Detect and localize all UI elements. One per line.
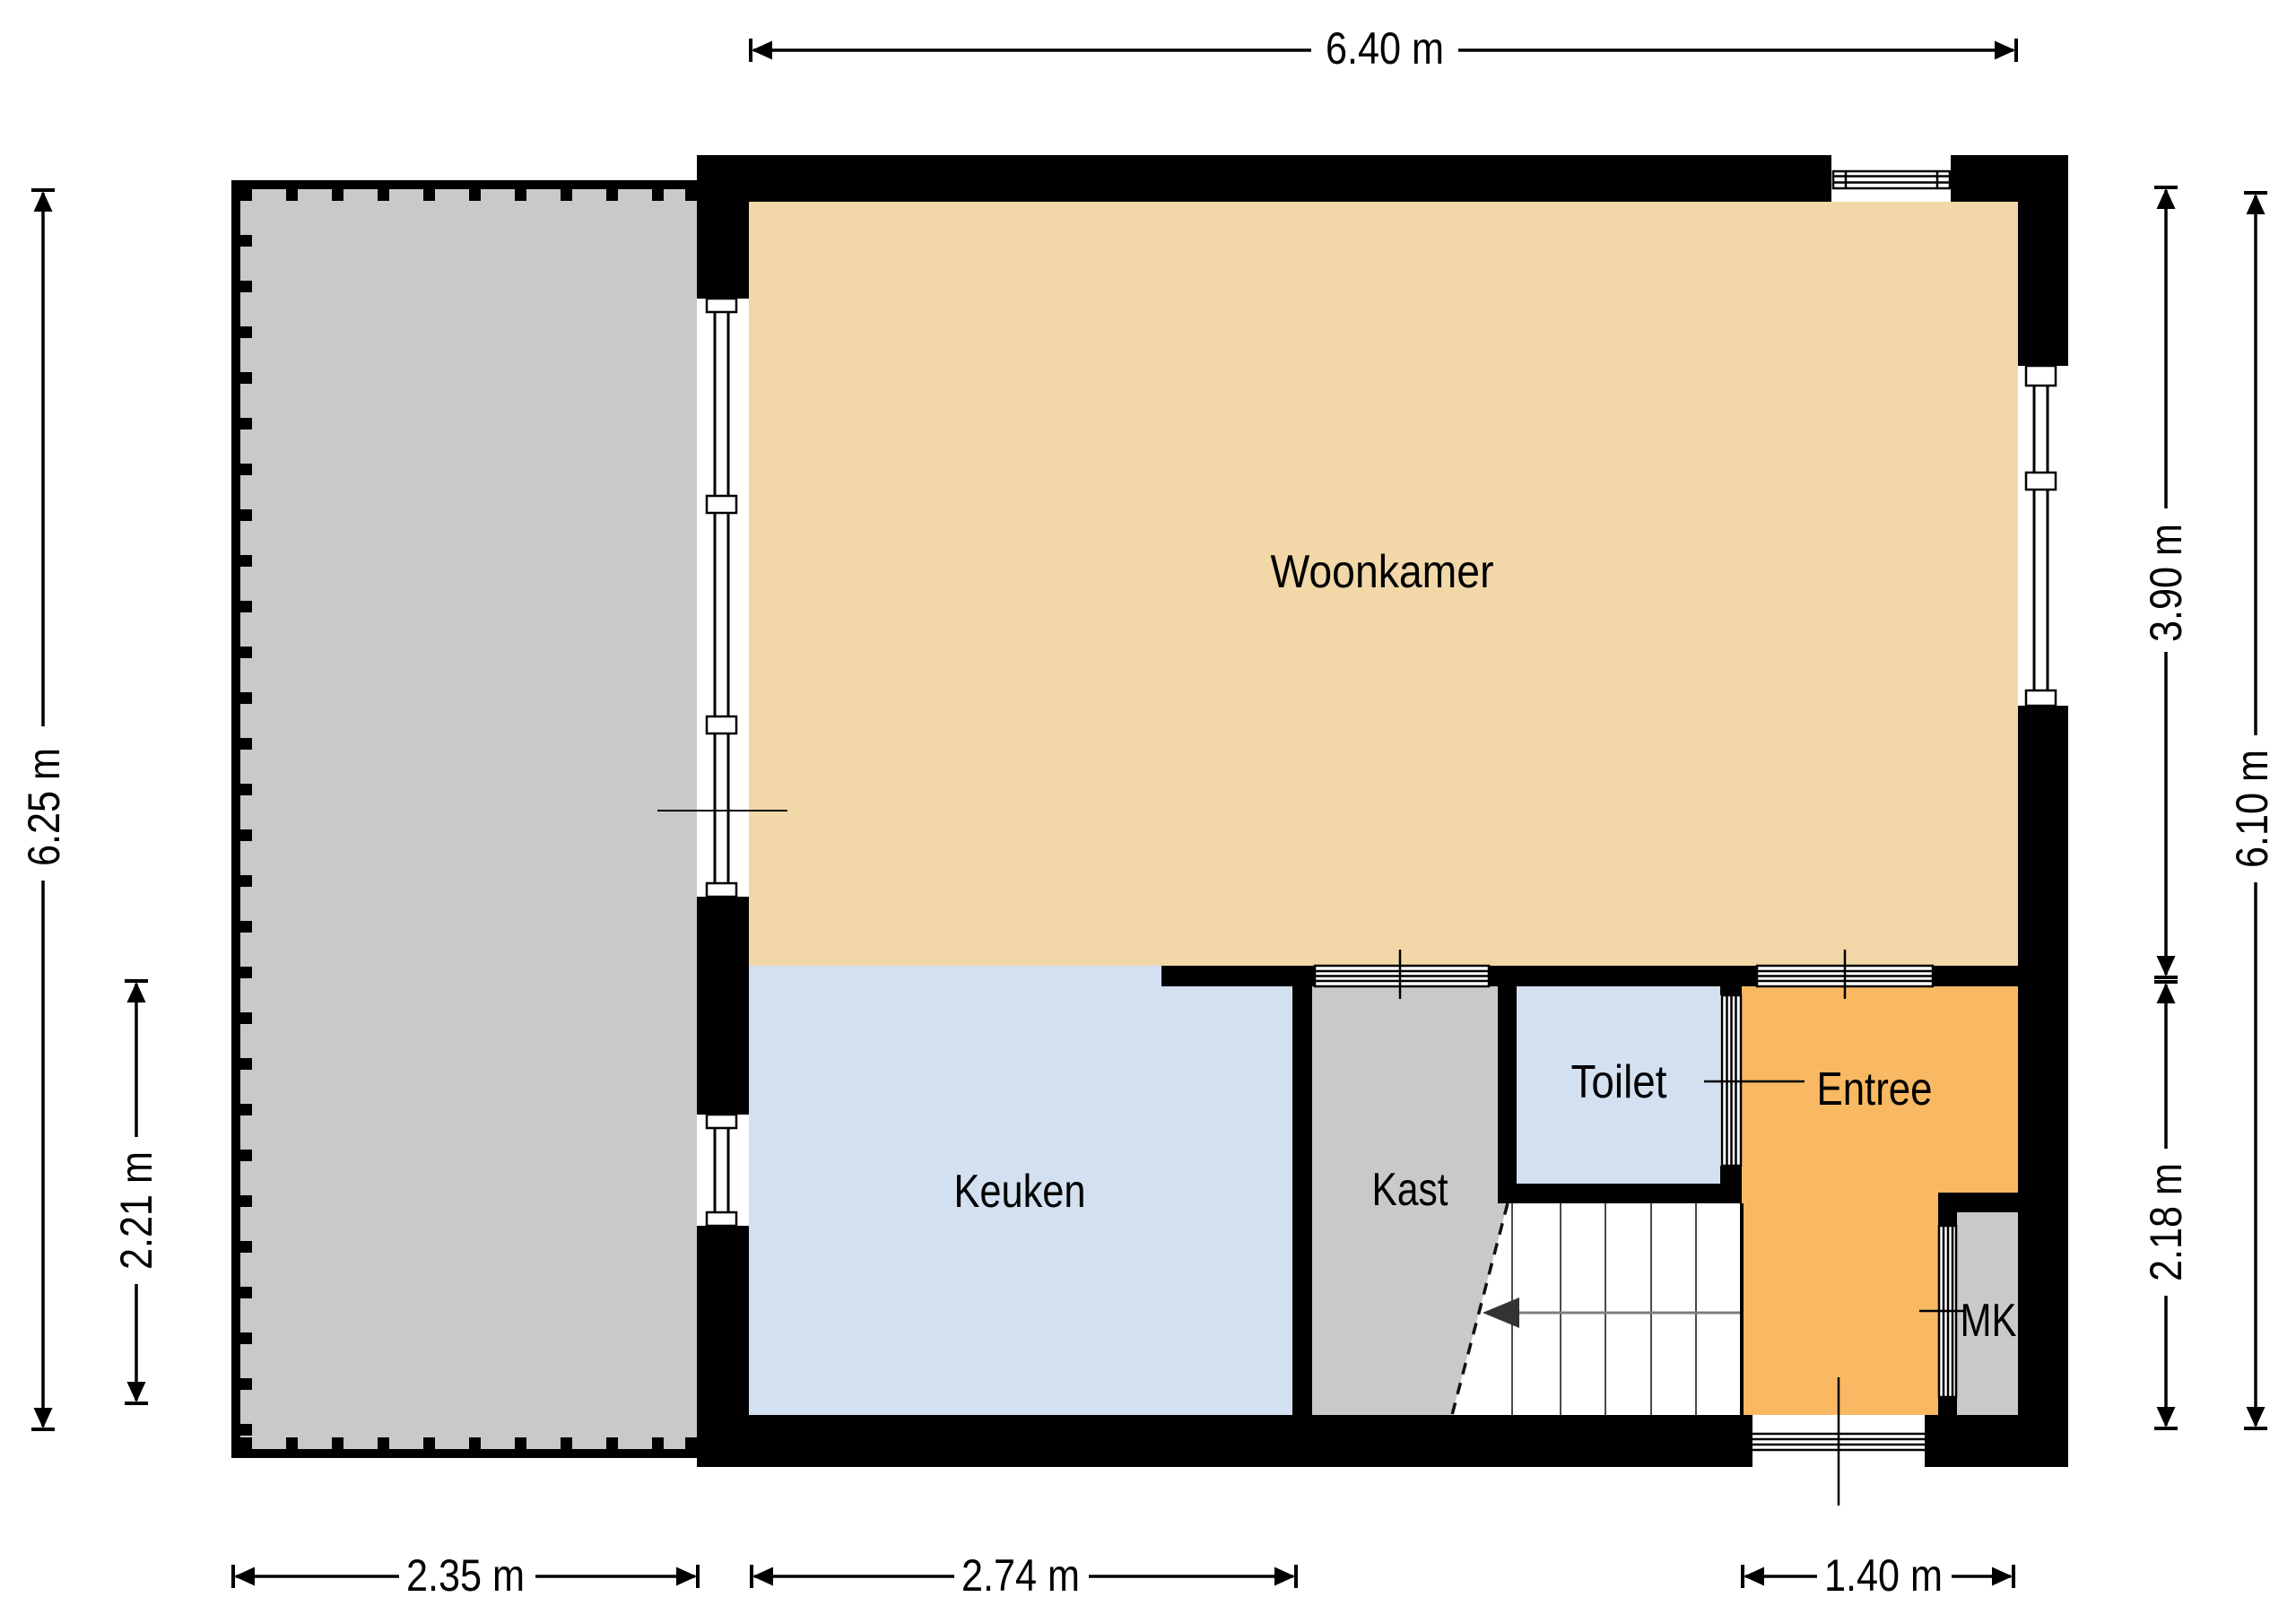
- svg-text:2.74 m: 2.74 m: [961, 1550, 1080, 1601]
- svg-text:2.35 m: 2.35 m: [406, 1550, 525, 1601]
- svg-text:1.40 m: 1.40 m: [1824, 1550, 1943, 1601]
- svg-text:Keuken: Keuken: [954, 1166, 1086, 1218]
- svg-text:6.40 m: 6.40 m: [1326, 23, 1444, 74]
- svg-text:Woonkamer: Woonkamer: [1271, 546, 1494, 598]
- svg-text:2.21 m: 2.21 m: [111, 1151, 161, 1270]
- svg-text:Kast: Kast: [1372, 1164, 1448, 1216]
- svg-text:6.25 m: 6.25 m: [19, 748, 69, 866]
- svg-text:2.18 m: 2.18 m: [2141, 1163, 2191, 1281]
- svg-text:3.90 m: 3.90 m: [2141, 524, 2191, 642]
- svg-text:Toilet: Toilet: [1571, 1056, 1667, 1108]
- svg-text:MK: MK: [1961, 1295, 2017, 1347]
- svg-text:6.10 m: 6.10 m: [2227, 750, 2277, 868]
- svg-text:Entree: Entree: [1817, 1063, 1933, 1115]
